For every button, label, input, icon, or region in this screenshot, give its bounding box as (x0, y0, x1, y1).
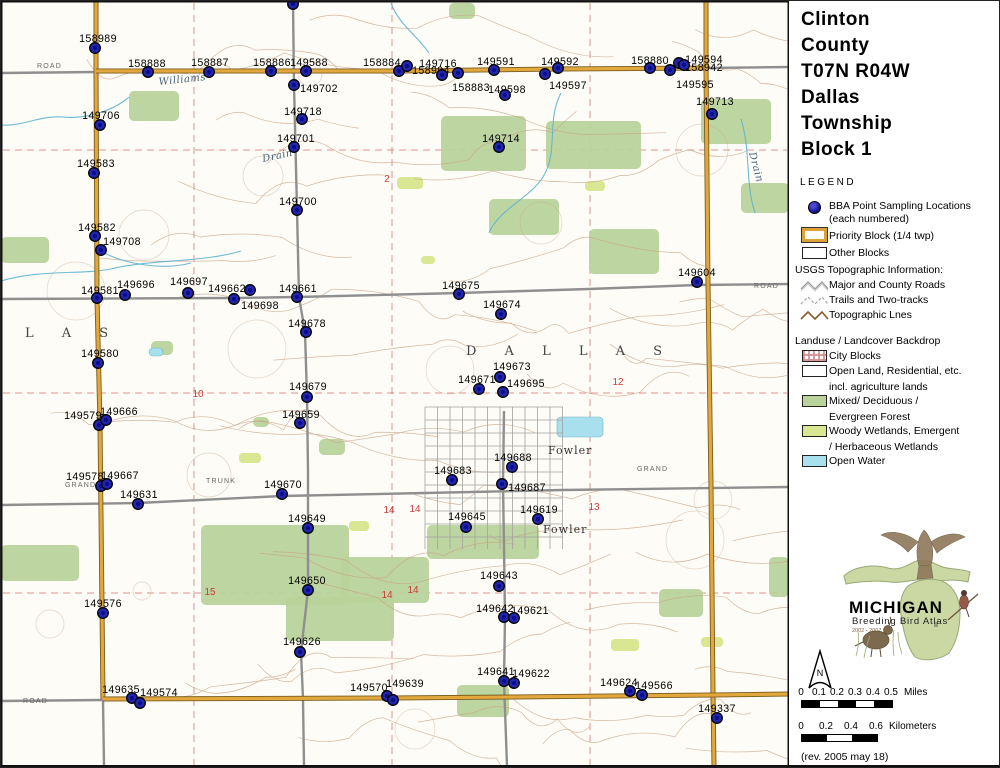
bba-point-core (93, 234, 97, 238)
other-blocks-swatch (802, 247, 827, 259)
bba-point-core (512, 616, 516, 620)
priority-block-swatch (802, 228, 827, 242)
bba-point-core (123, 293, 127, 297)
title-line: T07N R04W (801, 59, 910, 85)
bba-point-label: 149708 (103, 236, 141, 248)
legend-label: incl. agriculture lands (829, 378, 962, 394)
bba-point-label: 149687 (508, 482, 546, 494)
forest-patch (319, 439, 345, 455)
bba-point-core (105, 482, 109, 486)
michigan-bba-logo: MICHIGAN Breeding Bird Atlas II 2002 - 2… (836, 524, 998, 679)
north-label: N (817, 668, 824, 678)
title-line: Dallas (801, 85, 910, 111)
forest-patch (449, 3, 475, 19)
bba-point-core (497, 145, 501, 149)
bba-point-label: 149662 (208, 283, 246, 295)
bba-point-core (305, 395, 309, 399)
legend-item-roads: Major and County Roads (799, 278, 999, 292)
bba-point-core (306, 588, 310, 592)
legend-label: City Blocks (829, 349, 881, 363)
bba-point-core (304, 69, 308, 73)
bba-point-icon (808, 201, 821, 214)
place-label: ROAD (37, 63, 62, 70)
legend-item-trails: Trails and Two-tracks (799, 293, 999, 307)
bba-point-core (512, 681, 516, 685)
bba-point-core (500, 482, 504, 486)
legend-item-wetland: Woody Wetlands, Emergent / Herbaceous We… (799, 424, 999, 454)
bba-point-core (501, 390, 505, 394)
section-number: 10 (192, 389, 204, 400)
legend-item-forest: Mixed/ Deciduous / Evergreen Forest (799, 394, 999, 424)
legend-label: Major and County Roads (829, 278, 945, 292)
roads-zigzag-icon (799, 278, 829, 292)
place-label: D A L L A S (466, 344, 674, 359)
info-panel: Clinton County T07N R04W Dallas Township… (791, 1, 1000, 768)
wetland-patch (421, 256, 435, 264)
scale-tick: 0.4 (840, 721, 862, 732)
scale-unit: Kilometers (889, 721, 936, 732)
bba-point-core (682, 63, 686, 67)
section-number: 14 (409, 504, 421, 515)
legend-label: BBA Point Sampling Locations (829, 200, 971, 213)
title-line: Clinton (801, 7, 910, 33)
bba-point-core (715, 716, 719, 720)
bba-point-core (186, 291, 190, 295)
logo-title: MICHIGAN (849, 598, 943, 617)
scale-bar (801, 700, 893, 708)
forest-patch (427, 525, 539, 559)
bba-point-core (502, 679, 506, 683)
legend-item-priority-block: Priority Block (1/4 twp) (799, 228, 999, 243)
forest-patch (253, 417, 269, 427)
bba-point-core (306, 526, 310, 530)
bba-point-core (498, 375, 502, 379)
forest-patch (546, 121, 641, 169)
bba-point-core (292, 83, 296, 87)
bba-point-core (503, 93, 507, 97)
bba-point-core (543, 72, 547, 76)
bba-point-core (101, 611, 105, 615)
bba-point-core (99, 248, 103, 252)
michigan-upper-peninsula-shape (844, 560, 970, 584)
legend-label: Open Water (829, 454, 885, 468)
bba-point-core (280, 492, 284, 496)
wetland-patch (239, 453, 261, 463)
bba-point-core (136, 502, 140, 506)
place-label: Fowler (548, 444, 592, 457)
legend-label: Other Blocks (829, 246, 889, 260)
legend-label: Topographic Lnes (829, 308, 912, 322)
bba-point-core (477, 387, 481, 391)
bba-point-core (628, 689, 632, 693)
bba-point-label: 149622 (512, 668, 550, 680)
place-label: TRUNK (206, 478, 236, 485)
bba-point-core (397, 69, 401, 73)
legend-label: / Herbaceous Wetlands (829, 438, 959, 454)
legend-label: Evergreen Forest (829, 408, 918, 424)
bba-point-label: 158883 (452, 82, 490, 94)
bba-point-core (492, 68, 496, 72)
place-label: Fowler (543, 523, 587, 536)
bba-point-label: 149641 (477, 666, 515, 678)
legend-item-open-water: Open Water (799, 454, 999, 468)
forest-patch (589, 229, 659, 274)
bba-point-core (536, 517, 540, 521)
bba-point-label: 149697 (170, 276, 208, 288)
wetland-patch (349, 521, 369, 531)
bba-point-core (464, 525, 468, 529)
bba-point-core (95, 296, 99, 300)
bba-point-core (668, 68, 672, 72)
county-road (1, 700, 103, 701)
bba-point-core (291, 2, 295, 6)
revision-note: (rev. 2005 may 18) (801, 751, 888, 763)
legend-item-other-blocks: Other Blocks (799, 246, 999, 260)
wetland-patch (611, 639, 639, 651)
title-line: Block 1 (801, 137, 910, 163)
water-patch (149, 348, 163, 356)
wetland-patch (397, 177, 423, 189)
bba-point-core (300, 117, 304, 121)
title-line: County (801, 33, 910, 59)
bba-point-core (391, 698, 395, 702)
bba-point-core (207, 70, 211, 74)
scale-unit: Miles (904, 687, 927, 698)
section-number: 15 (204, 587, 216, 598)
legend-item-topo-lines: Topographic Lnes (799, 308, 999, 322)
open-land-swatch (802, 365, 827, 377)
section-number: 12 (612, 377, 624, 388)
legend-label: (each numbered) (829, 213, 971, 226)
scale-tick: 0.2 (815, 721, 837, 732)
page-title: Clinton County T07N R04W Dallas Township… (791, 7, 900, 163)
place-label: GRAND (637, 466, 668, 473)
bba-point-core (456, 71, 460, 75)
bba-point-core (695, 280, 699, 284)
legend-item-city-blocks: City Blocks (799, 349, 999, 363)
bba-point-core (405, 64, 409, 68)
bba-point-core (146, 70, 150, 74)
bba-point-core (497, 584, 501, 588)
bba-point-label: 149570 (350, 682, 388, 694)
trails-zigzag-icon (799, 293, 829, 307)
forest-patch (129, 91, 179, 121)
scale-bar (801, 734, 878, 742)
bba-point-core (499, 312, 503, 316)
bba-point-label: 149639 (386, 678, 424, 690)
legend-label: Open Land, Residential, etc. (829, 365, 962, 378)
legend-heading: LEGEND (800, 177, 856, 188)
bba-point-core (298, 421, 302, 425)
bba-point-core (97, 423, 101, 427)
atlas-map-page: WilliamsDrainDrainD A L L A SL A SFowler… (0, 0, 1000, 768)
legend-label: Mixed/ Deciduous / (829, 395, 918, 408)
bba-point-core (93, 46, 97, 50)
legend-label: Priority Block (1/4 twp) (829, 228, 934, 243)
legend-label: Trails and Two-tracks (829, 293, 928, 307)
bba-point-core (269, 69, 273, 73)
bba-point-core (92, 171, 96, 175)
title-line: Township (801, 111, 910, 137)
bba-point-core (138, 701, 142, 705)
bba-point-label: 158942 (685, 62, 723, 74)
city-blocks-swatch (802, 350, 827, 362)
section-number: 14 (407, 585, 419, 596)
bba-point-core (450, 478, 454, 482)
bba-point-core (96, 361, 100, 365)
bba-point-label: 149695 (507, 378, 545, 390)
bba-point-core (98, 123, 102, 127)
section-number: 14 (381, 590, 393, 601)
legend-label: Woody Wetlands, Emergent (829, 425, 959, 438)
landuse-heading: Landuse / Landcover Backdrop (795, 335, 940, 347)
forest-patch (1, 545, 79, 581)
scale-tick: 0 (790, 721, 812, 732)
bba-point-label: 149702 (300, 83, 338, 95)
bba-point-label: 149698 (241, 300, 279, 312)
bba-point-core (104, 418, 108, 422)
section-number: 13 (588, 502, 600, 513)
bba-point-label: 149626 (283, 636, 321, 648)
bba-point-core (292, 145, 296, 149)
place-label: ROAD (23, 698, 48, 705)
bba-point-core (304, 330, 308, 334)
forest-patch (659, 589, 703, 617)
bba-point-core (130, 696, 134, 700)
forest-patch (1, 237, 49, 263)
place-label: GRAND (65, 482, 96, 489)
bba-point-core (648, 66, 652, 70)
usgs-heading: USGS Topographic Information: (795, 264, 943, 276)
forest-patch (457, 685, 509, 717)
topo-zigzag-icon (799, 308, 829, 322)
topo-map: WilliamsDrainDrainD A L L A SL A SFowler… (1, 1, 789, 767)
bba-point-label: 149574 (140, 687, 178, 699)
water-patch (557, 417, 603, 437)
legend-item-bba: BBA Point Sampling Locations (each numbe… (799, 200, 999, 226)
bba-point-core (440, 73, 444, 77)
forest-patch (201, 525, 349, 605)
bba-point-core (295, 208, 299, 212)
bba-point-core (298, 650, 302, 654)
map-area: WilliamsDrainDrainD A L L A SL A SFowler… (1, 1, 789, 767)
scale-tick: 0.6 (865, 721, 887, 732)
legend-item-open-land: Open Land, Residential, etc. incl. agric… (799, 364, 999, 394)
bba-point-core (556, 66, 560, 70)
forest-patch (741, 183, 789, 213)
map-bottom-border (1, 765, 1000, 767)
place-label: ROAD (754, 283, 779, 290)
bba-point-label: 149696 (117, 279, 155, 291)
place-label: L A S (25, 326, 120, 341)
section-number: 14 (383, 505, 395, 516)
open-water-swatch (802, 455, 827, 467)
bba-point-label: 149597 (549, 80, 587, 92)
bba-point-label: 149595 (676, 79, 714, 91)
bba-point-core (510, 465, 514, 469)
county-road (103, 699, 104, 766)
bba-point-core (502, 615, 506, 619)
section-number: 2 (384, 174, 390, 185)
logo-edition: II (934, 622, 938, 629)
forest-swatch (802, 395, 827, 407)
bba-point-core (295, 295, 299, 299)
logo-years: 2002 - 2007 (852, 628, 881, 634)
bba-point-label: 149713 (696, 96, 734, 108)
scale-tick: 0.5 (880, 687, 902, 698)
bba-point-core (710, 112, 714, 116)
bba-point-core (457, 292, 461, 296)
wetland-swatch (802, 425, 827, 437)
bba-point-core (232, 297, 236, 301)
bba-point-core (248, 288, 252, 292)
bba-point-core (640, 693, 644, 697)
